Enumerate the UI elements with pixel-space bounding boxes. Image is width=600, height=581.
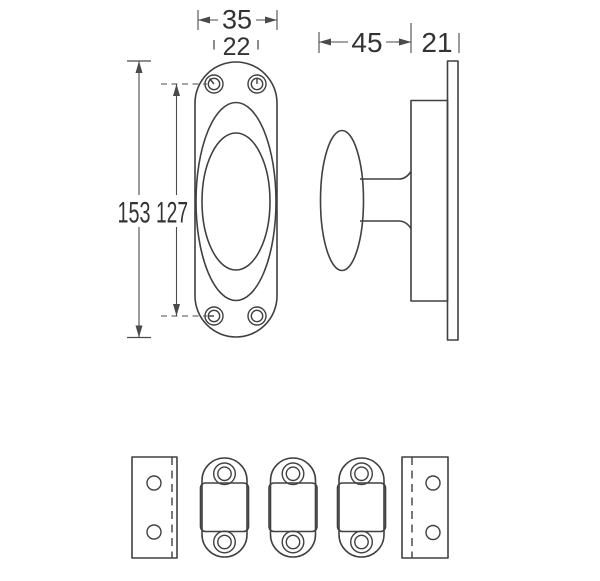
bracket-outline (132, 457, 177, 558)
dim-label-hole-spacing-height: 127 (156, 197, 188, 230)
angle-bracket-right (402, 457, 448, 558)
dim-plate-width: 35 (198, 5, 277, 35)
screw-hole-bottom-right (248, 307, 266, 325)
dim-label-plate-height: 153 (118, 197, 151, 230)
keeper-hole-inner (286, 535, 299, 548)
side-stem-bottom (360, 221, 411, 229)
keeper-hole (214, 463, 236, 485)
keeper-outline (202, 458, 247, 557)
dim-label-base-depth: 21 (421, 27, 452, 58)
screw-hole-bottom-left (205, 307, 223, 325)
dim-label-knob-projection: 45 (351, 27, 382, 58)
keeper-hole (351, 531, 373, 553)
dim-plate-height: 153 (118, 61, 152, 338)
keeper-plate-2 (269, 458, 317, 557)
keeper-hole (282, 531, 304, 553)
keeper-hole (214, 531, 236, 553)
parts-row (132, 457, 448, 558)
dim-label-hole-spacing-width: 22 (223, 33, 251, 61)
dim-hole-spacing-width: 22 (214, 33, 258, 61)
dim-knob-projection: 45 (319, 23, 411, 58)
angle-bracket-left (132, 457, 177, 558)
dim-base-depth: 21 (396, 27, 459, 58)
bracket-hole (426, 526, 440, 540)
side-backplate (448, 61, 459, 340)
keeper-hole (351, 463, 373, 485)
keeper-hole-inner (286, 467, 299, 480)
keeper-band (338, 483, 386, 532)
bracket-hole (147, 525, 161, 539)
bracket-hole (147, 476, 161, 490)
bracket-outline (402, 457, 448, 558)
screw-hole-top-left (205, 75, 223, 93)
screw-hole-top-right (248, 75, 266, 93)
keeper-band (269, 483, 317, 532)
dim-hole-spacing-height: 127 (156, 84, 207, 316)
keeper-hole-inner (355, 535, 368, 548)
keeper-hole-inner (355, 467, 368, 480)
side-stem-top (360, 172, 411, 180)
front-view (195, 62, 277, 337)
keeper-plate-1 (201, 458, 249, 557)
keeper-hole-inner (218, 535, 231, 548)
technical-drawing: 35 22 153 127 45 (0, 0, 600, 581)
dim-label-plate-width: 35 (222, 5, 252, 35)
keeper-hole-inner (218, 467, 231, 480)
keeper-outline (271, 458, 316, 557)
knob-front-oval (202, 133, 270, 270)
keeper-outline (339, 458, 384, 557)
bracket-hole (426, 476, 440, 490)
keeper-band (201, 483, 249, 532)
side-knob-base (411, 101, 448, 302)
keeper-hole (282, 463, 304, 485)
keeper-plate-3 (338, 458, 386, 557)
side-knob (321, 131, 364, 271)
side-view (321, 61, 459, 340)
